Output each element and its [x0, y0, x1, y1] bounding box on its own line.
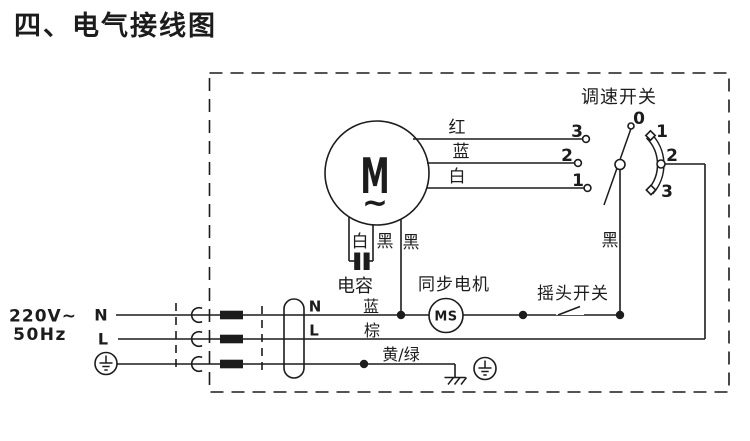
junction-dot-sync: [519, 311, 527, 319]
terminal-1-label: 1: [572, 171, 584, 191]
osc-switch-title: 摇头开关: [537, 284, 609, 304]
enclosure-dashed-border: [210, 73, 730, 392]
sync-motor-symbol-group: MS: [429, 299, 463, 333]
terminal-block-earth: [220, 360, 243, 369]
terminal-2-contact: [575, 160, 582, 167]
position-3-diamond: [646, 185, 655, 194]
terminal-2-label: 2: [561, 146, 573, 166]
capacitor-plate-right: [364, 253, 370, 271]
junction-dot-switch: [616, 311, 624, 319]
fan-motor: M ~: [325, 121, 429, 225]
input-live-label: L: [98, 330, 108, 349]
junction-dot-motor: [397, 311, 405, 319]
speed-switch-arc-inner: [647, 138, 658, 190]
frequency-label: 50Hz: [13, 325, 67, 345]
cord-blue-label: 蓝: [363, 297, 379, 316]
position-0-label: 0: [633, 109, 645, 129]
bottom-lead-white-label: 白: [352, 232, 369, 252]
terminal-block-neutral: [220, 311, 243, 320]
position-1-label: 1: [656, 122, 668, 142]
lead-red-label: 红: [449, 118, 466, 138]
speed-switch-symbol: [604, 123, 705, 339]
cord-neutral-label: N: [309, 298, 322, 316]
sync-motor-label: 同步电机: [418, 275, 490, 295]
cord-live-label: L: [309, 322, 319, 340]
motor-ac-mark: ~: [362, 185, 388, 221]
capacitor-label: 电容: [337, 276, 373, 297]
page-title: 四、电气接线图: [14, 11, 217, 42]
chassis-ground-symbol: [445, 364, 467, 385]
junction-dot-earth: [360, 360, 368, 368]
bottom-lead-black1-label: 黑: [377, 232, 394, 252]
sync-motor-symbol: MS: [434, 310, 457, 325]
capacitor-plate-left: [354, 253, 360, 271]
manual-page: M ~: [0, 0, 750, 441]
speed-switch-title: 调速开关: [581, 87, 657, 108]
cord-earth-label: 黄/绿: [382, 345, 419, 364]
input-earth-symbol: [95, 353, 117, 375]
wiring-diagram-canvas: M ~: [0, 0, 750, 441]
terminal-3-contact: [583, 136, 590, 143]
lead-blue-label: 蓝: [453, 142, 470, 162]
osc-switch-symbol: [556, 304, 584, 315]
chassis-ground-hatch-1: [448, 378, 454, 385]
internal-earth-symbol: [474, 358, 496, 380]
chassis-ground-hatch-3: [461, 378, 467, 385]
position-2-contact: [657, 160, 665, 168]
position-2-label: 2: [666, 146, 678, 166]
voltage-label: 220V~: [9, 307, 77, 327]
cord-brown-label: 棕: [364, 321, 380, 340]
lead-white-label: 白: [449, 167, 466, 187]
terminal-block-live: [220, 335, 243, 344]
position-3-label: 3: [661, 182, 673, 202]
terminal-3-label: 3: [571, 122, 583, 142]
terminal-1-contact: [584, 185, 591, 192]
bottom-lead-black2-label: 黑: [403, 233, 420, 253]
speed-switch-wire-label: 黑: [602, 231, 619, 251]
speed-switch-pivot: [615, 160, 625, 170]
input-neutral-label: N: [94, 306, 107, 325]
chassis-ground-hatch-2: [455, 378, 461, 385]
